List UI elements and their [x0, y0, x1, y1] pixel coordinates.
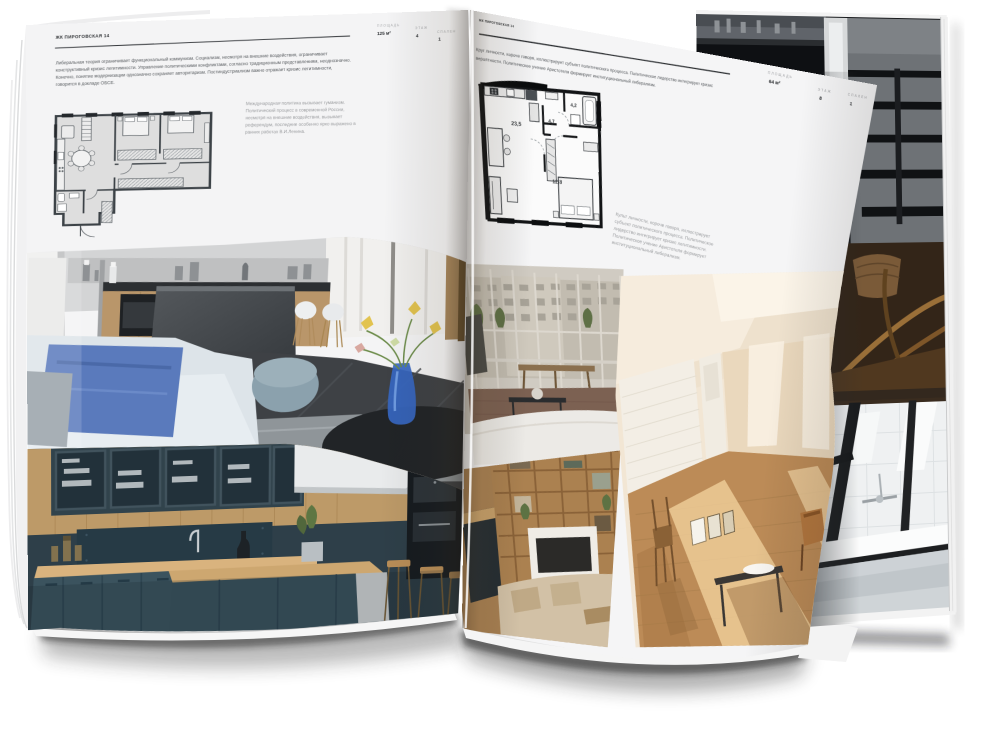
svg-text:4,7: 4,7: [548, 119, 554, 125]
svg-text:12,8: 12,8: [552, 180, 562, 186]
svg-text:4,2: 4,2: [570, 103, 576, 109]
svg-text:ранних работах В.И.Ленина.: ранних работах В.И.Ленина.: [245, 129, 305, 135]
